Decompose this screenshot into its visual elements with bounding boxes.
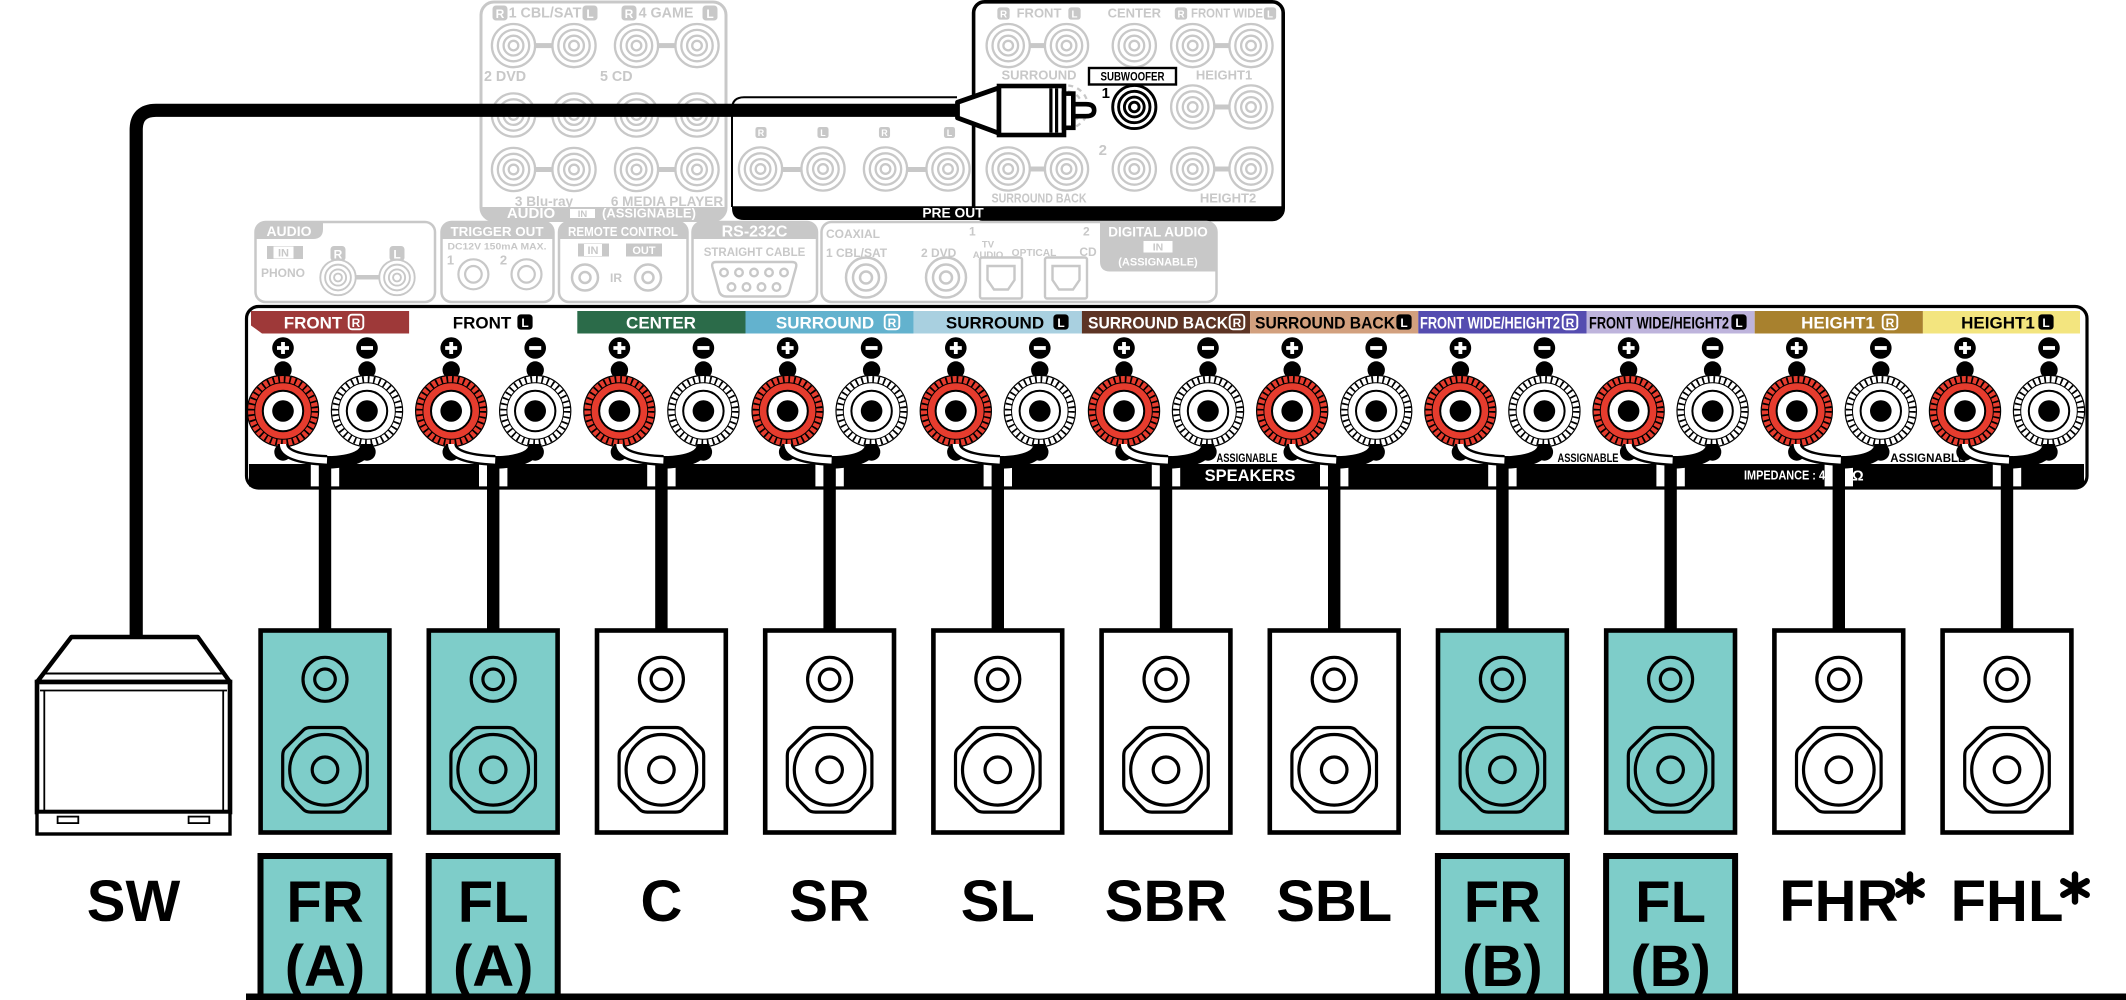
svg-text:SBL: SBL (1276, 869, 1392, 934)
svg-text:HEIGHT1: HEIGHT1 (1196, 68, 1252, 83)
svg-text:SURROUND BACK: SURROUND BACK (1255, 314, 1396, 333)
svg-text:SR: SR (789, 869, 870, 934)
svg-text:AUDIO: AUDIO (973, 250, 1004, 261)
svg-text:2: 2 (500, 253, 507, 268)
svg-text:CENTER: CENTER (1108, 6, 1162, 21)
svg-text:FRONT WIDE: FRONT WIDE (1191, 6, 1263, 21)
svg-text:FRONT WIDE/HEIGHT2: FRONT WIDE/HEIGHT2 (1589, 314, 1729, 333)
svg-text:HEIGHT1: HEIGHT1 (1801, 314, 1875, 333)
svg-text:IN: IN (1153, 242, 1164, 254)
svg-text:FRONT: FRONT (1017, 6, 1062, 21)
svg-text:FR: FR (1464, 870, 1541, 935)
svg-text:(A): (A) (285, 934, 366, 999)
svg-text:4 GAME: 4 GAME (639, 6, 694, 22)
svg-text:TRIGGER OUT: TRIGGER OUT (451, 224, 544, 239)
svg-text:SURROUND BACK: SURROUND BACK (1088, 314, 1229, 333)
svg-text:COAXIAL: COAXIAL (826, 227, 880, 241)
svg-text:DIGITAL AUDIO: DIGITAL AUDIO (1108, 225, 1208, 240)
svg-text:DC12V 150mA MAX.: DC12V 150mA MAX. (448, 242, 547, 253)
svg-text:(B): (B) (1630, 934, 1711, 999)
svg-text:SURROUND: SURROUND (1001, 68, 1076, 83)
svg-text:PHONO: PHONO (261, 266, 305, 280)
svg-text:RS-232C: RS-232C (722, 224, 788, 241)
svg-text:FRONT WIDE/HEIGHT2: FRONT WIDE/HEIGHT2 (1420, 314, 1560, 333)
svg-text:HEIGHT1: HEIGHT1 (1961, 314, 2035, 333)
svg-text:SL: SL (961, 869, 1035, 934)
svg-text:OUT: OUT (632, 245, 656, 257)
svg-text:SURROUND BACK: SURROUND BACK (992, 191, 1087, 206)
svg-text:SW: SW (87, 869, 181, 934)
svg-text:ASSIGNABLE: ASSIGNABLE (1217, 453, 1278, 465)
svg-text:FHR: FHR (1779, 869, 1898, 934)
svg-text:5 CD: 5 CD (600, 69, 633, 85)
svg-text:(A): (A) (453, 934, 534, 999)
svg-text:FR: FR (286, 870, 363, 935)
svg-text:FL: FL (458, 870, 529, 935)
svg-text:1: 1 (969, 224, 976, 238)
svg-text:TV: TV (982, 240, 995, 251)
svg-text:FRONT: FRONT (453, 314, 512, 333)
svg-text:ASSIGNABLE: ASSIGNABLE (1558, 453, 1619, 465)
svg-text:HEIGHT2: HEIGHT2 (1200, 191, 1256, 206)
svg-text:AUDIO: AUDIO (266, 223, 311, 239)
svg-text:FL: FL (1635, 870, 1706, 935)
svg-text:IN: IN (278, 248, 289, 260)
svg-text:PRE OUT: PRE OUT (922, 205, 984, 220)
svg-text:1 CBL/SAT: 1 CBL/SAT (826, 246, 888, 260)
svg-text:FHL: FHL (1951, 869, 2064, 934)
svg-text:1: 1 (447, 253, 454, 268)
svg-text:2 DVD: 2 DVD (484, 69, 526, 85)
svg-text:CENTER: CENTER (626, 314, 696, 333)
svg-text:Ω: Ω (1852, 469, 1864, 485)
svg-text:IR: IR (610, 271, 622, 285)
svg-text:2: 2 (1083, 224, 1090, 238)
svg-text:2: 2 (1099, 142, 1107, 159)
svg-text:SBR: SBR (1105, 869, 1227, 934)
svg-text:(B): (B) (1462, 934, 1543, 999)
svg-text:ASSIGNABLE: ASSIGNABLE (1890, 453, 1966, 465)
svg-text:(ASSIGNABLE): (ASSIGNABLE) (602, 206, 696, 221)
svg-text:1 CBL/SAT: 1 CBL/SAT (509, 6, 582, 22)
svg-text:IMPEDANCE : 4: IMPEDANCE : 4 (1744, 468, 1826, 483)
svg-text:(ASSIGNABLE): (ASSIGNABLE) (1118, 257, 1198, 269)
svg-text:1: 1 (1102, 85, 1110, 102)
svg-text:AUDIO: AUDIO (507, 205, 556, 222)
svg-text:SURROUND: SURROUND (776, 314, 874, 333)
svg-text:SPEAKERS: SPEAKERS (1205, 467, 1296, 485)
svg-text:FRONT: FRONT (284, 314, 343, 333)
svg-text:SUBWOOFER: SUBWOOFER (1101, 70, 1165, 84)
svg-text:SURROUND: SURROUND (946, 314, 1044, 333)
svg-text:C: C (640, 869, 682, 934)
svg-text:IN: IN (588, 245, 599, 257)
svg-text:REMOTE CONTROL: REMOTE CONTROL (568, 224, 678, 239)
svg-text:STRAIGHT CABLE: STRAIGHT CABLE (704, 247, 806, 259)
svg-text:IN: IN (578, 209, 588, 220)
